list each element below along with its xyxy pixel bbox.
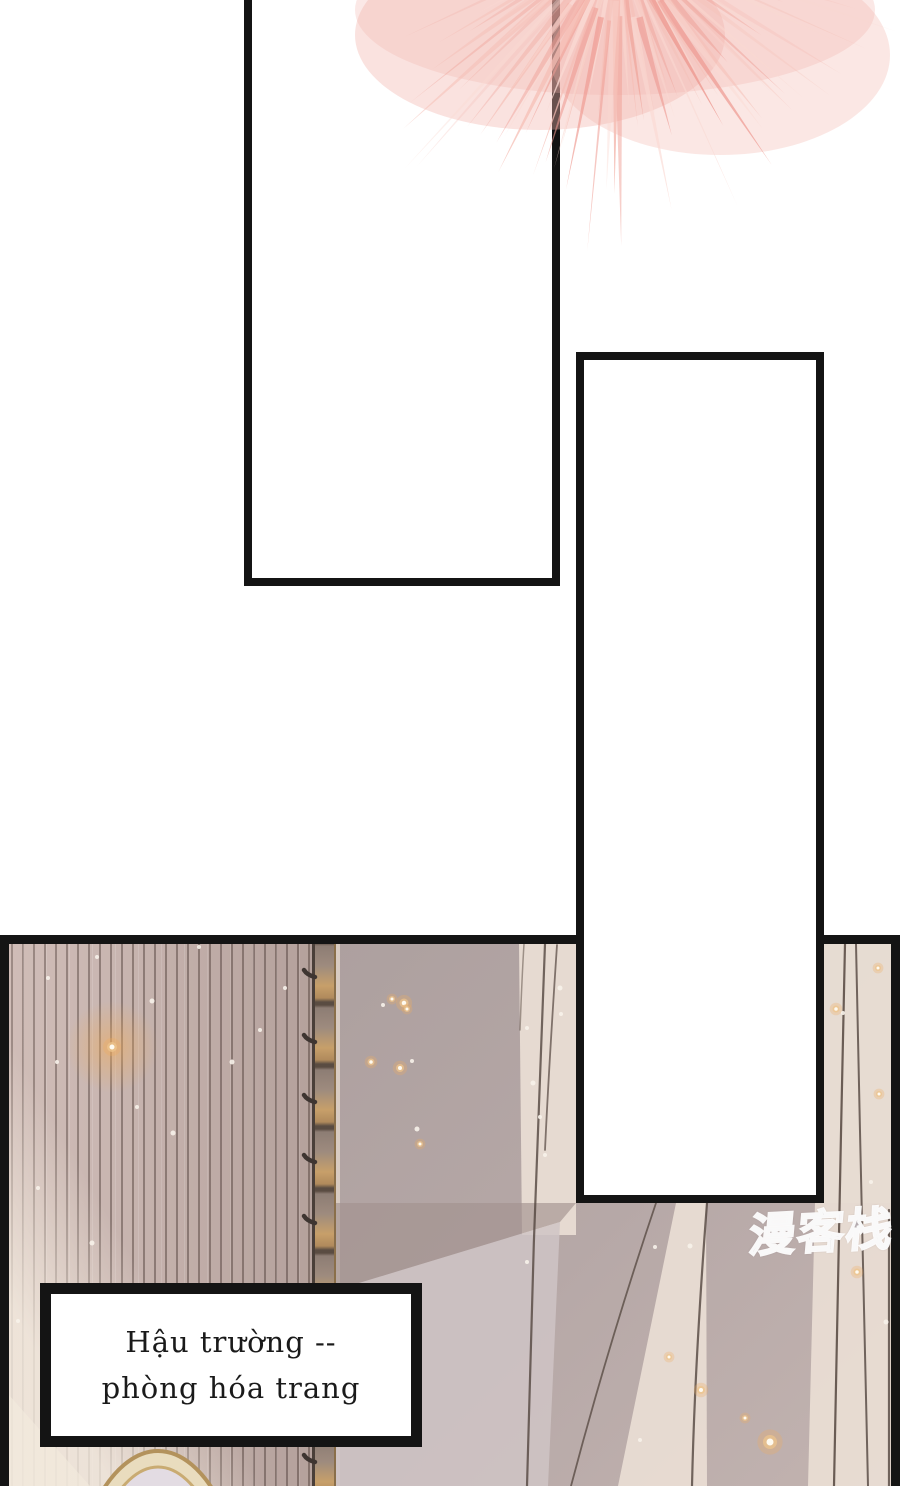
- comic-panel-1: [244, 0, 560, 586]
- comic-page: 漫客栈 Hậu trường -- phòng hóa trang: [0, 0, 900, 1486]
- watermark-logo: 漫客栈: [747, 1192, 898, 1265]
- comic-panel-2: [576, 352, 824, 1203]
- caption-line-2: phòng hóa trang: [102, 1368, 361, 1408]
- caption-box: Hậu trường -- phòng hóa trang: [40, 1283, 422, 1447]
- panel-border: [0, 935, 9, 1486]
- caption-line-1: Hậu trường --: [125, 1322, 336, 1362]
